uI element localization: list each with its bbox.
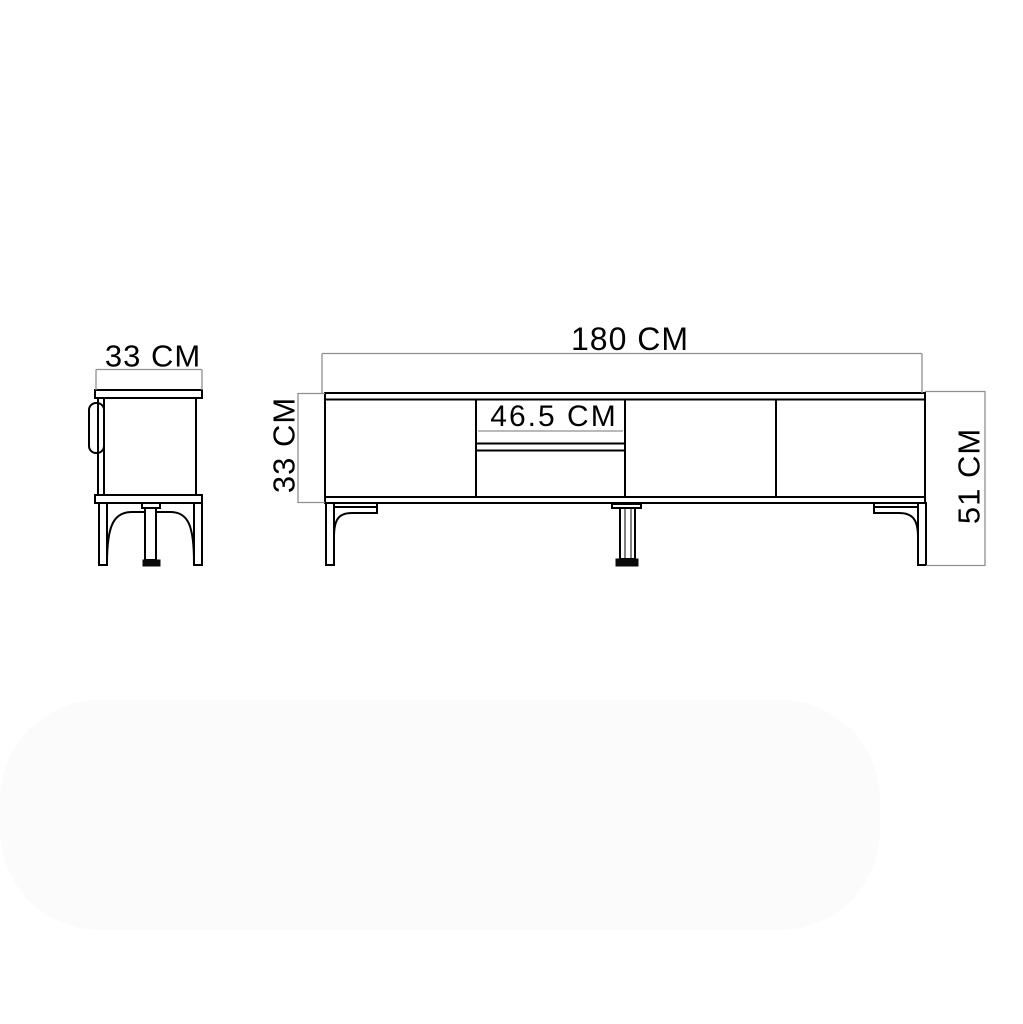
front-view-body-height-dim-line (298, 393, 325, 503)
side-view (89, 390, 202, 566)
side-view-width-label: 33 CM (105, 341, 201, 372)
side-view-bottom-panel (95, 495, 202, 503)
side-view-left-leg (99, 503, 107, 565)
front-view-body-height-label: 33 CM (269, 397, 300, 493)
side-view-right-leg (194, 503, 202, 565)
side-view-door-handle (89, 403, 104, 453)
front-view-left-leg-bracket (334, 503, 377, 537)
side-view-center-leg (145, 508, 156, 560)
front-view-left-leg (326, 503, 334, 565)
technical-drawing-canvas: 33 CM 180 CM 33 CM 46.5 CM 51 CM (0, 0, 1023, 1024)
front-view-center-leg (620, 508, 635, 559)
dimension-lines (96, 354, 985, 567)
front-view-total-height-label: 51 CM (954, 428, 985, 524)
front-view (325, 393, 926, 566)
drawing-linework (0, 0, 1023, 1024)
side-view-top-panel (95, 390, 202, 398)
front-view-right-leg (918, 503, 926, 565)
front-view-width-label: 180 CM (571, 323, 689, 355)
front-view-width-dim-line (322, 354, 922, 394)
side-view-left-arch (107, 512, 145, 563)
side-view-right-arch (156, 512, 194, 563)
front-view-center-leg-foot (616, 559, 638, 566)
front-view-middle-width-label: 46.5 CM (490, 402, 617, 432)
side-view-center-leg-foot (143, 560, 160, 566)
front-view-right-leg-bracket (874, 503, 918, 537)
